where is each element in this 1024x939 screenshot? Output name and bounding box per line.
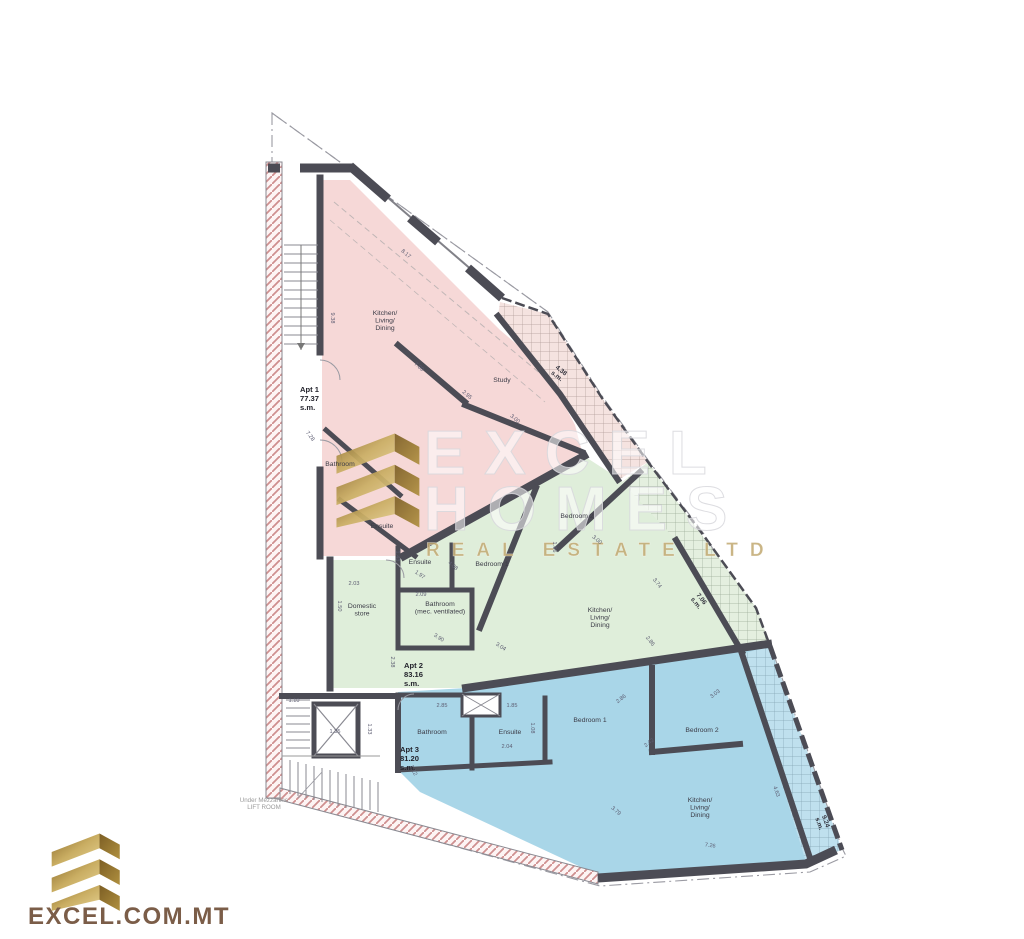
dimension-label: 1.35 [330,729,341,735]
dimension-label: 1.33 [366,724,372,735]
dimension-label: 2.03 [349,581,360,587]
brand-logo: EXCEL.COM.MT [28,834,230,930]
room-label: Bathroom [325,461,355,468]
room-label: Kitchen/Living/Dining [688,797,713,819]
dimension-label: 1.10 [289,698,300,704]
dimension-label: 2.04 [502,744,513,750]
floor-plan: EXCEL HOMES REAL ESTATE LTD EXCEL.COM.MT… [0,0,1024,939]
room-label: Bathroom [417,729,447,736]
room-label: Ensuite [409,559,432,566]
dimension-label: 1.66 [551,542,557,553]
dimension-label: 2.85 [437,703,448,709]
dimension-label: 1.50 [336,601,342,612]
dimension-label: 9.38 [329,313,335,324]
room-label: Bedroom 1 [573,717,606,724]
dimension-label: 1.85 [507,703,518,709]
note-leader [298,772,322,798]
room-label: Bedroom 1 [475,561,508,568]
room-label: Ensuite [499,729,522,736]
apartment-label: Apt 177.37s.m. [300,385,320,412]
dimension-label: 2.38 [389,657,395,668]
brand-name: EXCEL.COM.MT [28,903,230,930]
lift-room-note: Under MezzanineLIFT ROOM [240,797,289,811]
room-label: Bedroom 2 [685,727,718,734]
room-label: Kitchen/Living/Dining [588,607,613,629]
watermark-subtitle: HOMES [424,475,746,544]
room-label: Study [493,377,511,384]
vent-shaft [462,694,500,716]
dimension-label: 1.08 [529,723,535,734]
room-label: Kitchen/Living/Dining [373,310,398,332]
dimension-label: 2.09 [416,592,427,598]
room-label: Ensuite [371,523,394,530]
dimension-label: 1.43 [394,551,400,562]
staircase-upper [284,245,318,350]
dimension-label: 7.28 [304,430,315,442]
room-label: Bedroom 2 [560,513,593,520]
